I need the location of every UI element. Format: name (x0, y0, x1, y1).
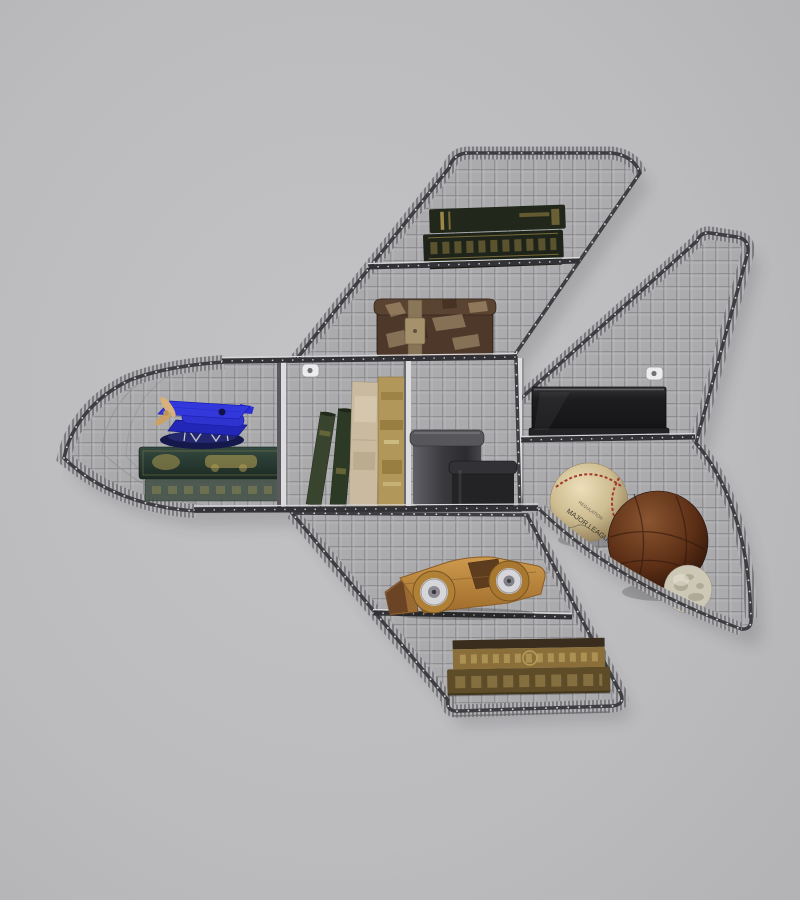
mounting-bracket-left (302, 364, 319, 377)
standing-book-tan (349, 382, 380, 507)
standing-book-gold (378, 377, 405, 506)
green-book-lower-volume (145, 479, 283, 501)
black-box (529, 387, 669, 437)
toy-car-front-wheel (413, 571, 455, 613)
mounting-bracket-right (646, 367, 663, 380)
product-photo-airplane-shelf: REGULATION MAJOR LEAGUE (0, 0, 800, 900)
canister-small (449, 461, 517, 507)
bottom-wing-books (447, 638, 611, 697)
storage-box (374, 299, 496, 357)
scene: REGULATION MAJOR LEAGUE (0, 0, 800, 900)
tail-shelf-rail (521, 437, 695, 440)
toy-car-rear-wheel (489, 561, 529, 601)
biplane-cockpit (219, 409, 226, 416)
gilt-ornament (152, 454, 180, 470)
nose-divider-rod (281, 361, 286, 511)
